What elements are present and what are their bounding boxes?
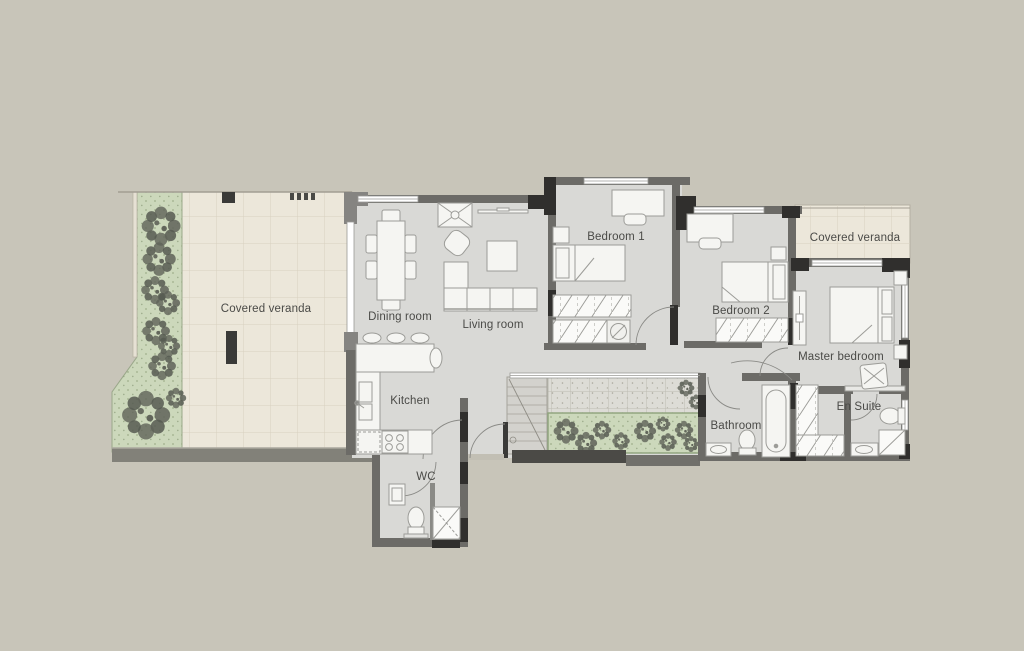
veranda-bottom-wall	[112, 448, 380, 462]
room-label-en-suite: En Suite	[837, 401, 882, 413]
external-staircase	[507, 377, 547, 454]
washing-machine	[607, 320, 630, 343]
desk	[612, 190, 664, 216]
veranda-pillar	[226, 331, 237, 364]
toilet	[739, 430, 755, 450]
room-label-covered-veranda-right: Covered veranda	[810, 232, 900, 244]
toilet	[880, 408, 900, 424]
desk-chair	[699, 238, 721, 249]
room-label-wc: WC	[416, 471, 435, 483]
toilet	[408, 507, 424, 529]
patio-south-wall	[512, 450, 626, 463]
patio-planting-bed	[548, 413, 700, 454]
room-label-kitchen: Kitchen	[390, 395, 429, 407]
nightstand	[894, 271, 907, 285]
room-label-living-room: Living room	[462, 319, 523, 331]
washbasin	[706, 443, 731, 456]
column	[222, 192, 235, 203]
coffee-table	[487, 241, 517, 271]
covered-veranda-left-area	[112, 192, 380, 462]
tv-cabinet	[438, 203, 472, 227]
pergola	[548, 376, 703, 413]
room-label-bedroom-1: Bedroom 1	[587, 231, 645, 243]
patio-area	[507, 373, 703, 466]
breakfast-bar	[356, 333, 442, 372]
room-label-bathroom: Bathroom	[710, 420, 761, 432]
bench-cushion	[860, 363, 888, 390]
room-label-covered-veranda-left: Covered veranda	[221, 303, 311, 315]
nightstand	[771, 247, 786, 260]
room-label-dining-room: Dining room	[368, 311, 432, 323]
desk-chair	[624, 214, 646, 225]
nightstand	[894, 345, 907, 359]
room-label-master-bedroom: Master bedroom	[798, 351, 884, 363]
floor-plan: Covered veranda Dining room Living room …	[0, 0, 1024, 651]
room-label-bedroom-2: Bedroom 2	[712, 305, 770, 317]
nightstand	[553, 227, 569, 243]
